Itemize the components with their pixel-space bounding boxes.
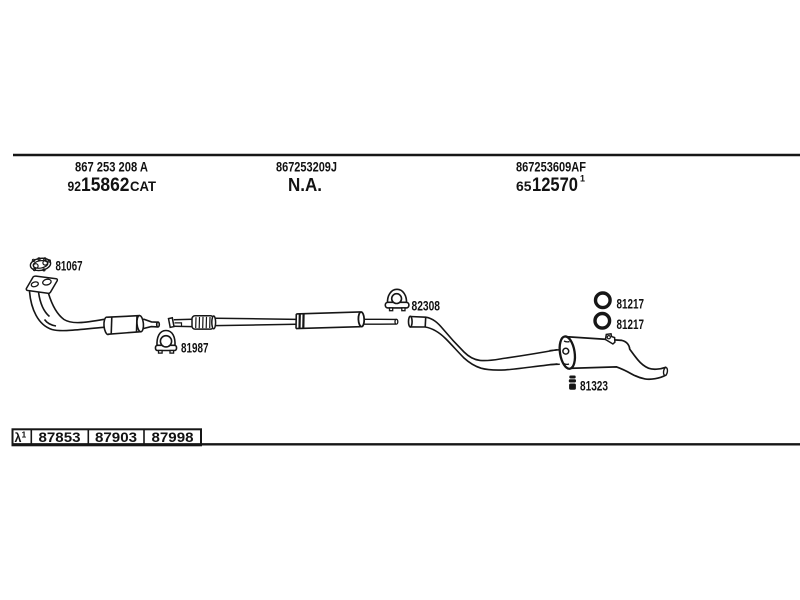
svg-text:87998: 87998 — [152, 430, 195, 445]
svg-text:81067: 81067 — [56, 259, 83, 274]
svg-text:65: 65 — [516, 179, 532, 194]
svg-text:CAT: CAT — [130, 179, 157, 194]
svg-text:87853: 87853 — [39, 430, 82, 445]
svg-text:1: 1 — [580, 174, 585, 184]
svg-text:1: 1 — [22, 430, 27, 440]
svg-text:81323: 81323 — [580, 379, 608, 394]
svg-text:12570: 12570 — [532, 174, 578, 196]
svg-text:867253609AF: 867253609AF — [516, 159, 586, 175]
svg-text:15862: 15862 — [81, 174, 130, 196]
svg-text:87903: 87903 — [95, 430, 138, 445]
svg-text:λ: λ — [15, 431, 22, 445]
svg-text:81217: 81217 — [617, 297, 645, 312]
svg-text:867 253 208 A: 867 253 208 A — [75, 159, 148, 175]
svg-text:867253209J: 867253209J — [276, 159, 337, 175]
svg-text:92: 92 — [68, 179, 82, 194]
svg-text:81987: 81987 — [181, 341, 209, 356]
svg-text:81217: 81217 — [617, 317, 645, 332]
svg-text:82308: 82308 — [412, 299, 441, 314]
svg-text:N.A.: N.A. — [288, 174, 322, 195]
